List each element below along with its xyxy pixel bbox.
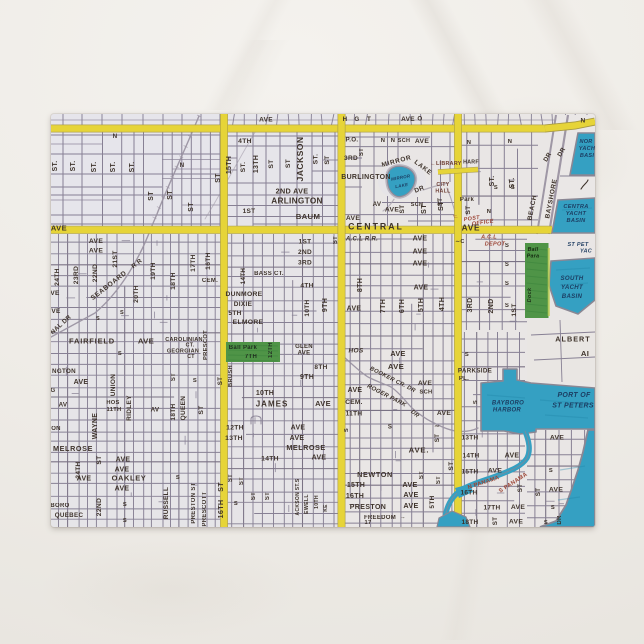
svg-text:S: S xyxy=(388,425,392,431)
svg-text:8TH: 8TH xyxy=(314,364,327,371)
svg-text:AVE: AVE xyxy=(385,207,399,214)
svg-text:AVE: AVE xyxy=(549,487,563,494)
svg-text:AVE: AVE xyxy=(413,236,428,243)
svg-text:24TH: 24TH xyxy=(54,268,61,286)
svg-text:AVE: AVE xyxy=(259,117,273,124)
svg-text:AVE: AVE xyxy=(509,519,523,526)
svg-text:S: S xyxy=(544,520,548,526)
svg-text:S: S xyxy=(120,310,124,316)
svg-text:S: S xyxy=(511,185,515,191)
svg-text:AVE: AVE xyxy=(115,467,130,474)
svg-text:N: N xyxy=(391,138,396,144)
svg-text:AVE: AVE xyxy=(315,399,331,408)
svg-text:23RD: 23RD xyxy=(73,266,80,284)
svg-text:S: S xyxy=(344,428,350,432)
svg-text:YAC: YAC xyxy=(580,249,593,255)
svg-text:AVE: AVE xyxy=(298,351,311,357)
svg-text:A.C.L: A.C.L xyxy=(480,235,497,241)
svg-text:ST: ST xyxy=(171,373,177,381)
svg-text:PL.: PL. xyxy=(459,376,469,382)
svg-text:AVE: AVE xyxy=(390,349,405,358)
svg-text:7TH: 7TH xyxy=(380,299,387,313)
svg-text:22ND: 22ND xyxy=(96,498,103,516)
svg-text:S: S xyxy=(123,502,127,508)
svg-text:PARKSIDE: PARKSIDE xyxy=(458,368,492,375)
svg-text:S: S xyxy=(176,475,180,481)
svg-text:O: O xyxy=(417,116,422,123)
svg-text:4TH: 4TH xyxy=(238,138,252,145)
svg-text:AVE: AVE xyxy=(505,453,520,460)
svg-text:N: N xyxy=(467,140,472,146)
svg-text:3RD: 3RD xyxy=(467,298,474,313)
svg-text:17TH: 17TH xyxy=(190,254,197,272)
svg-text:ST: ST xyxy=(324,155,331,165)
svg-text:SCH: SCH xyxy=(419,390,432,396)
svg-text:21ST: 21ST xyxy=(112,250,119,268)
svg-text:MELROSE: MELROSE xyxy=(53,444,93,453)
svg-text:ARLINGTON: ARLINGTON xyxy=(271,197,323,206)
svg-text:PORT OF: PORT OF xyxy=(557,392,591,399)
svg-text:AV: AV xyxy=(59,402,68,409)
svg-text:S: S xyxy=(505,262,509,268)
svg-text:KE: KE xyxy=(323,504,329,512)
svg-text:19TH: 19TH xyxy=(150,262,157,280)
svg-text:YACHT: YACHT xyxy=(561,284,584,291)
svg-text:EWELL: EWELL xyxy=(304,494,310,514)
svg-text:9TH: 9TH xyxy=(322,298,329,312)
svg-text:11TH: 11TH xyxy=(346,411,363,418)
svg-text:ALBERT: ALBERT xyxy=(555,335,590,344)
svg-text:16TH: 16TH xyxy=(346,493,364,500)
svg-text:4TH: 4TH xyxy=(300,283,313,290)
svg-text:ST: ST xyxy=(218,482,225,492)
svg-text:VE: VE xyxy=(51,290,60,297)
svg-text:ST: ST xyxy=(285,158,292,168)
svg-text:AVE: AVE xyxy=(414,285,429,292)
svg-text:14TH: 14TH xyxy=(240,268,247,285)
svg-text:AVE: AVE xyxy=(550,435,564,442)
svg-text:10TH: 10TH xyxy=(256,390,274,397)
svg-text:NEWTON: NEWTON xyxy=(357,470,393,479)
svg-text:AVE: AVE xyxy=(116,457,131,464)
svg-text:ST: ST xyxy=(434,434,441,443)
svg-text:ON: ON xyxy=(51,426,61,432)
svg-text:BASS CT.: BASS CT. xyxy=(254,271,284,277)
svg-text:AVE: AVE xyxy=(89,238,103,245)
svg-text:PRESTON ST: PRESTON ST xyxy=(191,482,197,523)
svg-text:ST: ST xyxy=(465,205,472,215)
svg-text:RIDLEY: RIDLEY xyxy=(126,395,133,421)
svg-text:ST: ST xyxy=(399,205,406,214)
svg-text:4TH: 4TH xyxy=(439,297,446,311)
svg-text:2ND: 2ND xyxy=(488,299,495,314)
svg-text:S: S xyxy=(551,505,555,511)
svg-text:Dock: Dock xyxy=(527,287,533,302)
svg-text:AVE: AVE xyxy=(413,249,428,256)
svg-text:ST: ST xyxy=(359,148,365,156)
svg-text:14TH: 14TH xyxy=(462,453,479,460)
svg-text:S: S xyxy=(96,316,100,322)
svg-text:SCH: SCH xyxy=(398,138,411,144)
svg-text:ST: ST xyxy=(188,202,195,212)
svg-text:ST PETERS: ST PETERS xyxy=(552,403,594,410)
svg-text:AI: AI xyxy=(581,349,589,358)
svg-text:YACHT: YACHT xyxy=(566,211,587,217)
svg-text:DUNMORE: DUNMORE xyxy=(226,291,263,298)
svg-text:5TH: 5TH xyxy=(228,310,241,317)
svg-text:16TH: 16TH xyxy=(216,500,225,519)
svg-text:BAUM: BAUM xyxy=(296,212,320,221)
svg-text:Ball: Ball xyxy=(528,247,539,253)
svg-text:10TH: 10TH xyxy=(304,299,311,316)
svg-text:ST: ST xyxy=(239,477,245,485)
svg-text:S: S xyxy=(505,281,509,287)
svg-text:BASI: BASI xyxy=(580,153,595,159)
svg-text:ST: ST xyxy=(198,405,205,415)
svg-text:AVE: AVE xyxy=(413,261,428,268)
svg-text:DIXIE: DIXIE xyxy=(234,301,253,308)
svg-text:G: G xyxy=(51,388,56,394)
svg-text:QUEEN: QUEEN xyxy=(180,396,187,421)
svg-text:9TH: 9TH xyxy=(300,374,314,381)
svg-text:17: 17 xyxy=(365,520,372,526)
svg-text:5TH: 5TH xyxy=(429,495,436,508)
svg-text:15TH: 15TH xyxy=(461,469,478,476)
svg-text:BASIN: BASIN xyxy=(567,218,587,224)
svg-text:N: N xyxy=(487,209,492,215)
svg-text:UNION: UNION xyxy=(110,374,117,396)
svg-text:QUEBEC: QUEBEC xyxy=(55,512,84,519)
svg-text:JACKSON: JACKSON xyxy=(295,137,305,182)
svg-text:ST: ST xyxy=(436,476,442,484)
svg-text:AVE: AVE xyxy=(138,337,154,346)
svg-text:AVE: AVE xyxy=(415,138,429,145)
svg-text:PRESCOTT: PRESCOTT xyxy=(202,491,208,526)
svg-text:ELMORE: ELMORE xyxy=(233,319,264,326)
svg-text:Para: Para xyxy=(527,254,540,260)
svg-text:N: N xyxy=(581,118,586,125)
svg-text:ST: ST xyxy=(251,492,257,500)
svg-text:∼: ∼ xyxy=(434,423,440,430)
svg-text:13TH: 13TH xyxy=(225,435,243,442)
svg-text:S: S xyxy=(118,351,122,357)
svg-text:FAIRFIELD: FAIRFIELD xyxy=(69,337,115,346)
svg-text:T: T xyxy=(367,116,371,123)
svg-text:WAYNE: WAYNE xyxy=(92,413,99,440)
svg-text:20TH: 20TH xyxy=(133,285,140,303)
svg-text:AVE: AVE xyxy=(403,501,418,510)
svg-text:12TH: 12TH xyxy=(268,342,274,358)
svg-text:ST: ST xyxy=(268,159,275,169)
svg-text:HOS: HOS xyxy=(349,348,364,355)
svg-text:ST.: ST. xyxy=(129,162,136,173)
svg-text:AVE: AVE xyxy=(462,224,481,233)
svg-text:NGTON: NGTON xyxy=(52,368,76,375)
svg-text:GLEN: GLEN xyxy=(295,344,313,350)
svg-text:ST: ST xyxy=(217,377,224,386)
svg-text:N: N xyxy=(180,162,185,169)
svg-text:PRESTON: PRESTON xyxy=(350,504,387,511)
svg-text:HALL: HALL xyxy=(435,189,451,195)
svg-text:→: → xyxy=(400,515,406,521)
svg-text:SOUTH: SOUTH xyxy=(561,275,584,282)
svg-text:ST: ST xyxy=(492,517,499,526)
svg-text:S: S xyxy=(123,518,127,524)
svg-text:S: S xyxy=(505,243,509,249)
svg-text:AVE.: AVE. xyxy=(409,446,430,455)
svg-text:1ST: 1ST xyxy=(243,208,256,215)
svg-text:ST: ST xyxy=(228,474,234,482)
svg-text:←: ← xyxy=(453,214,459,220)
svg-text:DEPOT: DEPOT xyxy=(485,242,506,248)
svg-text:N: N xyxy=(113,133,118,140)
svg-text:CITY: CITY xyxy=(436,182,449,188)
svg-text:BORO: BORO xyxy=(51,503,70,509)
svg-text:13TH: 13TH xyxy=(461,435,478,442)
svg-text:A.C.L R.R.: A.C.L R.R. xyxy=(345,237,378,243)
svg-text:JAMES: JAMES xyxy=(256,400,289,409)
svg-text:ST: ST xyxy=(265,492,271,500)
svg-text:NOR: NOR xyxy=(579,139,592,145)
svg-text:AV: AV xyxy=(151,407,160,414)
svg-text:3RD: 3RD xyxy=(344,155,358,162)
svg-text:N: N xyxy=(508,139,513,145)
svg-text:HARBOR: HARBOR xyxy=(493,408,521,414)
svg-text:PRESCOT: PRESCOT xyxy=(203,330,209,360)
svg-text:HOS: HOS xyxy=(106,400,119,406)
svg-text:S: S xyxy=(465,352,469,358)
svg-text:←LIBRARY: ←LIBRARY xyxy=(430,161,462,167)
svg-text:5TH: 5TH xyxy=(418,298,425,312)
svg-text:ST.: ST. xyxy=(70,161,77,172)
svg-text:AVE: AVE xyxy=(115,486,130,493)
svg-text:CENTRA: CENTRA xyxy=(563,204,588,210)
svg-text:ST: ST xyxy=(167,190,174,200)
svg-text:CENTRAL: CENTRAL xyxy=(348,222,404,232)
svg-text:2ND AVE: 2ND AVE xyxy=(276,187,309,196)
svg-text:ST: ST xyxy=(215,173,222,183)
svg-text:CEM.: CEM. xyxy=(202,278,218,284)
svg-text:P.O.: P.O. xyxy=(346,137,359,144)
svg-text:22ND: 22ND xyxy=(92,264,99,282)
svg-text:OAKLEY: OAKLEY xyxy=(112,474,147,483)
svg-text:H: H xyxy=(343,116,348,123)
svg-text:ST PET: ST PET xyxy=(567,242,588,248)
svg-text:CEM.: CEM. xyxy=(345,399,362,406)
svg-text:12TH: 12TH xyxy=(226,425,244,432)
svg-text:ST: ST xyxy=(419,204,428,214)
svg-text:IVE: IVE xyxy=(51,308,61,315)
svg-text:AVE: AVE xyxy=(437,410,451,417)
svg-text:BAYBORO: BAYBORO xyxy=(492,401,524,407)
svg-text:ST: ST xyxy=(448,461,455,471)
svg-text:BASIN: BASIN xyxy=(562,293,583,300)
svg-text:11TH: 11TH xyxy=(107,407,122,413)
svg-text:S: S xyxy=(234,501,238,507)
svg-text:AVE: AVE xyxy=(89,248,103,255)
svg-text:MELROSE: MELROSE xyxy=(286,443,325,452)
svg-text:AVE: AVE xyxy=(290,435,305,442)
svg-text:3RD: 3RD xyxy=(298,260,312,267)
svg-text:ST: ST xyxy=(96,455,103,465)
svg-text:ST.: ST. xyxy=(110,162,117,173)
svg-text:AVE: AVE xyxy=(348,387,363,394)
svg-text:AVE: AVE xyxy=(291,425,306,432)
svg-text:1ST: 1ST xyxy=(299,239,312,246)
svg-text:AVE: AVE xyxy=(51,224,67,233)
svg-text:13TH: 13TH xyxy=(253,155,260,173)
svg-text:AVE: AVE xyxy=(402,480,417,489)
svg-text:AVE: AVE xyxy=(403,490,418,499)
svg-text:AVE: AVE xyxy=(488,468,502,475)
svg-text:7TH: 7TH xyxy=(245,354,257,360)
svg-text:N: N xyxy=(381,138,386,144)
svg-text:Park: Park xyxy=(460,197,475,203)
svg-text:AVE: AVE xyxy=(312,455,327,462)
svg-text:6TH: 6TH xyxy=(399,299,406,313)
svg-text:RUSSELL: RUSSELL xyxy=(163,487,170,519)
svg-text:18TH: 18TH xyxy=(461,519,478,526)
svg-text:17TH: 17TH xyxy=(483,505,500,512)
svg-text:AVE: AVE xyxy=(74,379,89,386)
svg-text:ST: ST xyxy=(437,198,444,207)
svg-text:ST: ST xyxy=(535,488,542,497)
svg-text:S: S xyxy=(473,400,479,404)
svg-text:YACH: YACH xyxy=(579,146,595,152)
svg-text:S: S xyxy=(505,303,509,309)
svg-text:∼C: ∼C xyxy=(455,239,464,245)
svg-text:ST.: ST. xyxy=(91,162,98,173)
svg-text:AVE: AVE xyxy=(511,504,525,511)
svg-text:ST.: ST. xyxy=(313,154,320,165)
svg-text:BRUSH: BRUSH xyxy=(228,365,234,387)
svg-text:ST: ST xyxy=(333,236,339,244)
svg-text:DR: DR xyxy=(557,515,563,525)
svg-text:AVE: AVE xyxy=(418,380,432,387)
svg-text:1ST: 1ST xyxy=(511,303,518,317)
svg-text:BURLINGTON: BURLINGTON xyxy=(341,174,391,181)
svg-text:8TH: 8TH xyxy=(357,278,364,292)
svg-text:2ND: 2ND xyxy=(298,249,312,256)
svg-text:18TH: 18TH xyxy=(170,272,177,290)
svg-text:S: S xyxy=(549,468,553,474)
svg-text:G: G xyxy=(354,116,359,123)
svg-text:S: S xyxy=(494,185,498,191)
svg-text:10TH: 10TH xyxy=(314,495,320,509)
svg-text:15TH: 15TH xyxy=(347,482,365,489)
svg-text:14TH: 14TH xyxy=(261,456,279,463)
svg-text:16TH: 16TH xyxy=(460,490,477,497)
svg-text:AVE: AVE xyxy=(77,476,92,483)
svg-text:ST: ST xyxy=(419,471,425,479)
svg-text:CAROLINIAN: CAROLINIAN xyxy=(165,337,203,343)
svg-text:HARF: HARF xyxy=(463,160,479,166)
svg-text:AVE: AVE xyxy=(388,362,404,371)
svg-text:AVE: AVE xyxy=(401,116,415,123)
svg-text:S: S xyxy=(193,378,197,384)
svg-text:AVE: AVE xyxy=(347,306,362,313)
svg-text:Ball Park: Ball Park xyxy=(229,345,258,351)
svg-text:ST: ST xyxy=(148,191,155,201)
svg-text:16TH: 16TH xyxy=(205,252,212,270)
svg-text:ST: ST xyxy=(517,484,524,493)
svg-text:ST.: ST. xyxy=(52,161,59,172)
svg-text:ACKSON ST.S: ACKSON ST.S xyxy=(295,478,301,515)
svg-text:15TH: 15TH xyxy=(226,156,233,174)
svg-text:ST.: ST. xyxy=(240,162,247,173)
svg-text:18TH: 18TH xyxy=(170,403,177,420)
svg-text:AV: AV xyxy=(373,201,382,208)
svg-text:CT: CT xyxy=(187,354,195,360)
